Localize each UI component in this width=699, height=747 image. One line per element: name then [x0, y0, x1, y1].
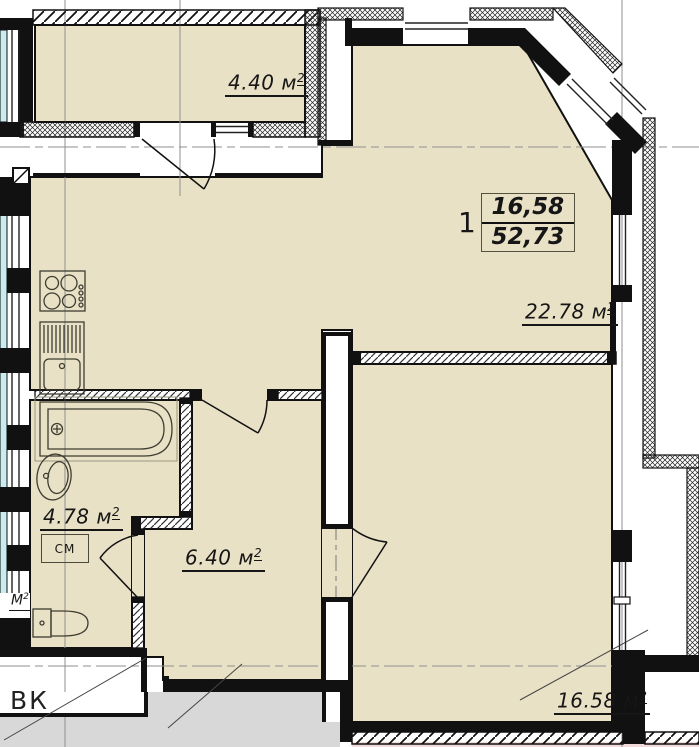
bay-top-window	[405, 23, 468, 29]
hallway-area-label: 6.40 м2	[182, 547, 265, 572]
washing-machine-box: СМ	[41, 534, 89, 563]
apartment-area-box: 16,58 52,73	[481, 193, 575, 252]
balcony-window	[216, 127, 248, 133]
room-bedroom	[352, 364, 612, 722]
bedroom-bottom-wall	[352, 732, 623, 744]
bedroom-top-wall	[352, 352, 616, 364]
apartment-number: 1	[458, 206, 476, 239]
balcony-area-label: 4.40 м2	[225, 72, 308, 97]
floor-plan-drawing	[0, 0, 699, 747]
vent-shaft-label: ВК	[10, 686, 49, 715]
apartment-total-area: 52,73	[482, 224, 574, 252]
neighbor-area-label: М2	[9, 592, 31, 611]
apartment-label: 1 16,58 52,73	[458, 193, 575, 252]
bay-angled-window	[567, 79, 613, 125]
bedroom-area-label: 16.58 м2	[554, 690, 650, 715]
kitchen-living-area-label: 22.78 м2	[522, 301, 618, 326]
drain-icon	[13, 168, 29, 184]
bay-outer-angled-window	[610, 78, 646, 114]
apartment-living-area: 16,58	[482, 194, 574, 224]
bathroom-area-label: 4.78 м2	[40, 506, 123, 531]
floor-plan: 4.40 м2 1 16,58 52,73 22.78 м2 4.78 м2 С…	[0, 0, 699, 747]
balcony-top-wall	[33, 10, 320, 25]
